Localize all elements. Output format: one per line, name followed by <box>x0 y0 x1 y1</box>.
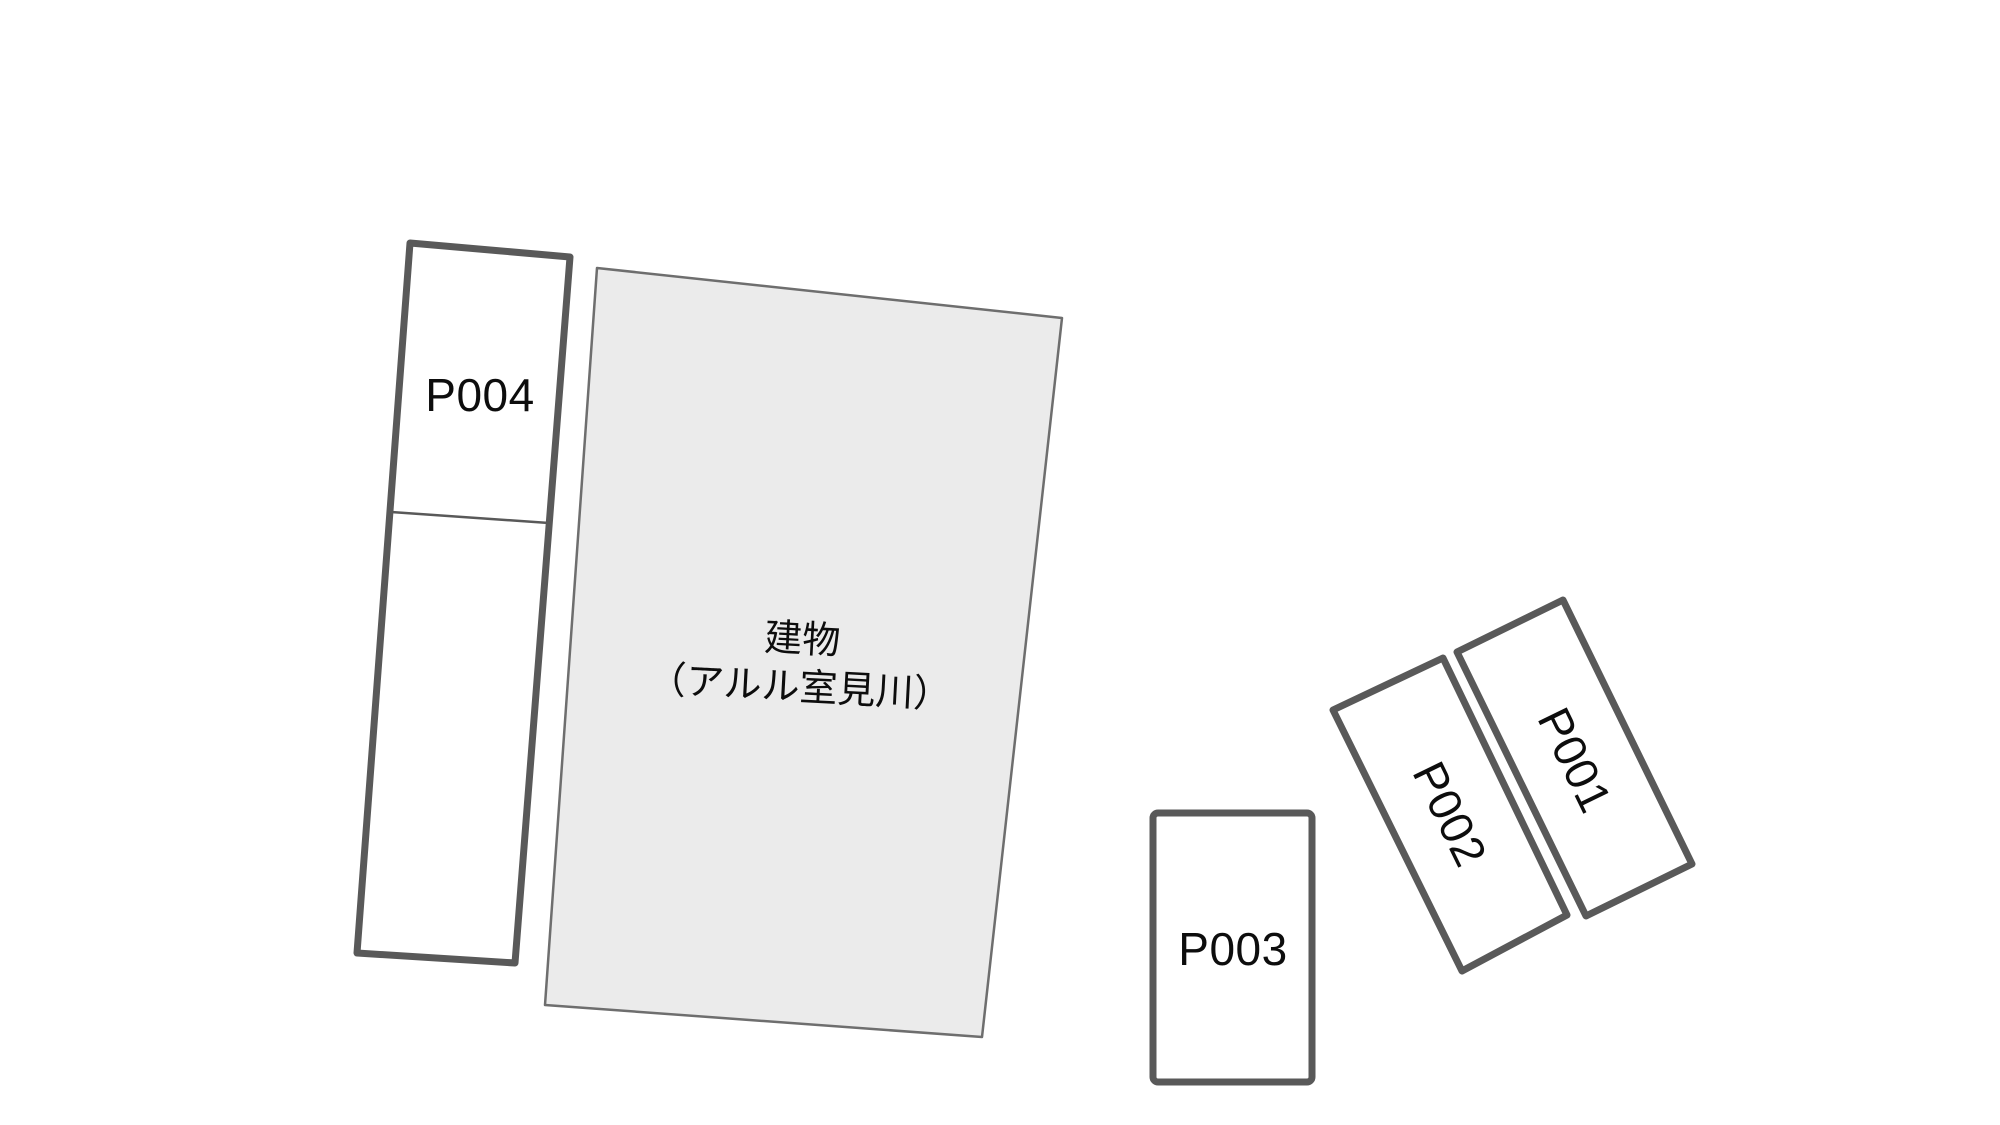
building-label-line1: 建物 <box>763 617 841 663</box>
space-label-p004: P004 <box>425 369 534 421</box>
space-label-p003: P003 <box>1178 923 1287 975</box>
space-shape-p004 <box>357 243 570 963</box>
parking-space-p003[interactable]: P003 <box>1153 813 1312 1082</box>
building: 建物 （アルル室見川） <box>545 268 1062 1037</box>
parking-site-map: 建物 （アルル室見川） P004 P003 P002 P001 <box>0 0 2000 1125</box>
parking-space-p004[interactable]: P004 <box>357 243 570 963</box>
